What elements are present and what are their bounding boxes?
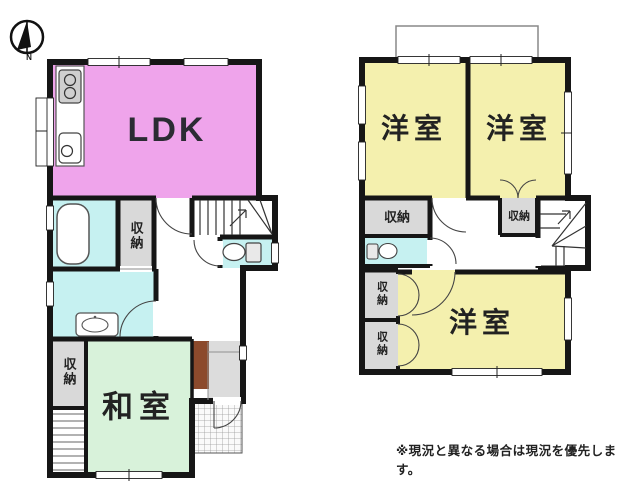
closet-2f-b-label: 収納 <box>376 331 387 357</box>
door-arc-toilet-1f <box>194 240 220 266</box>
staircase-1f-icon <box>200 200 272 235</box>
bedroom-3-label: 洋室 <box>449 309 515 337</box>
storage-1f-a-label: 収納 <box>130 221 143 251</box>
engawa-deck <box>50 408 86 475</box>
compass-n-label: N <box>26 54 32 62</box>
bedroom-1-label: 洋室 <box>381 115 447 143</box>
shoe-cabinet <box>192 341 209 389</box>
door-arc-toilet-2f <box>430 238 456 264</box>
storage-2f-a-label: 収納 <box>384 211 410 224</box>
door-arc-ldk <box>156 198 192 234</box>
door-arc-bedroom-1 <box>432 198 466 232</box>
entrance-hall <box>208 341 243 401</box>
toilet-2f-icon <box>367 244 397 260</box>
kitchen-counter-icon <box>56 66 84 166</box>
bedroom-2-label: 洋室 <box>486 115 552 143</box>
floor-plan-drawing <box>0 0 640 496</box>
disclaimer-text: ※現況と異なる場合は現況を優先します。 <box>396 440 640 478</box>
washbasin-icon <box>76 313 118 336</box>
balcony <box>396 26 538 59</box>
storage-2f-b-label: 収納 <box>508 212 530 223</box>
washitsu-label: 和室 <box>102 392 176 423</box>
floor-plan-page: N LDK 和室 収納 収納 洋室 洋室 洋室 収納 収納 収納 収納 ※現況と… <box>0 0 640 496</box>
north-compass-icon <box>11 21 43 53</box>
ldk-label: LDK <box>128 113 207 147</box>
closet-2f-a-label: 収納 <box>376 281 387 307</box>
storage-1f-b-label: 収納 <box>63 357 76 387</box>
bathtub-icon <box>57 204 89 264</box>
